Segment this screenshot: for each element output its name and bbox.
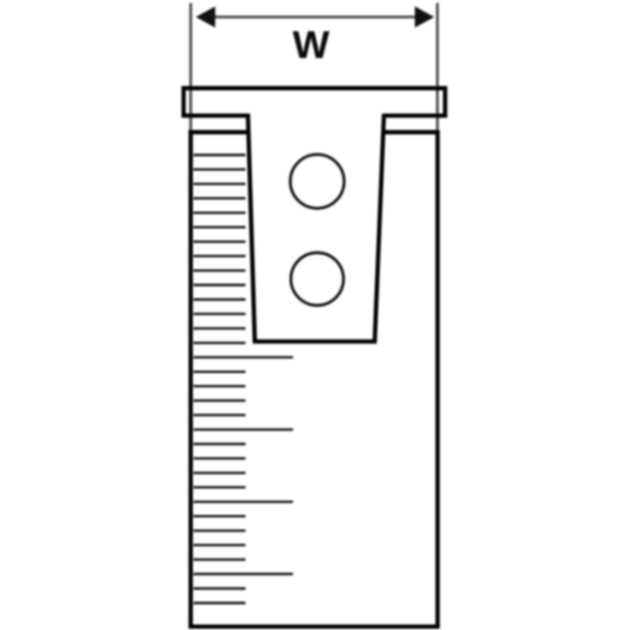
svg-text:W: W: [293, 24, 330, 67]
